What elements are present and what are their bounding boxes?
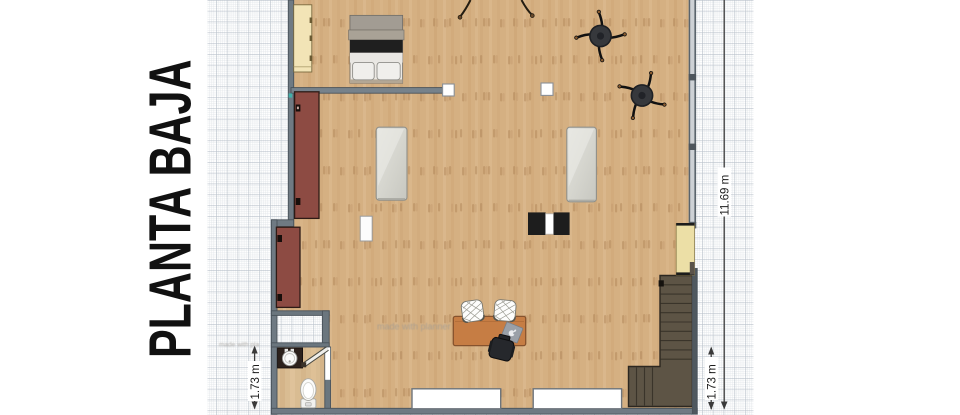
svg-text:1.73 m: 1.73 m	[250, 364, 262, 399]
svg-text:PLANTA BAJA: PLANTA BAJA	[137, 60, 203, 358]
svg-text:made with planner: made with planner	[377, 322, 451, 332]
svg-text:made with pla: made with pla	[219, 342, 259, 349]
svg-text:1.73 m: 1.73 m	[706, 364, 718, 399]
svg-text:11.69 m: 11.69 m	[719, 175, 731, 216]
